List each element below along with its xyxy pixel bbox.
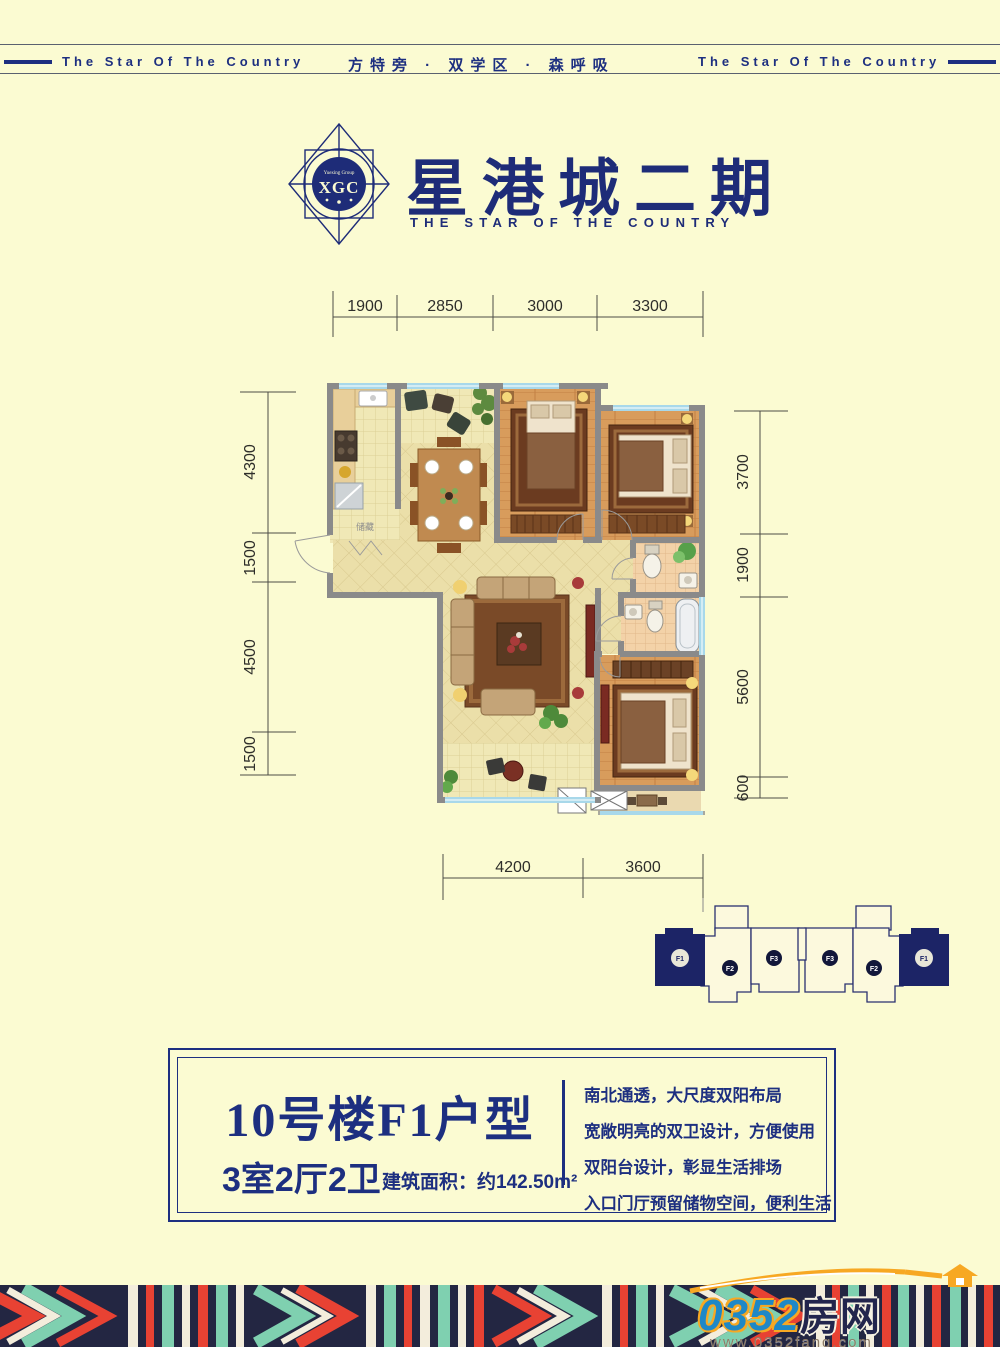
bedroom2-furniture: [609, 413, 693, 533]
site-url: www.0352fang.com: [710, 1334, 873, 1347]
feature-list: 南北通透，大尺度双阳布局 宽敞明亮的双卫设计，方便使用 双阳台设计，彰显生活排场…: [584, 1078, 832, 1222]
feature-item: 入口门厅预留储物空间，便利生活: [584, 1186, 832, 1222]
keyplan-outline-units: [701, 906, 903, 1002]
keyplan: F1 F2 F3 F3 F2 F1: [652, 898, 952, 1016]
brand-emblem: Yuexing Group XGC: [283, 118, 395, 250]
info-divider: [562, 1080, 565, 1185]
flyer-page: The Star Of The Country 方特旁 · 双学区 · 森呼吸 …: [0, 0, 1000, 1347]
unit-rooms: 3室2厅2卫: [222, 1152, 381, 1201]
svg-text:3300: 3300: [632, 298, 668, 315]
tagline-left: The Star Of The Country: [62, 54, 304, 69]
svg-text:1900: 1900: [735, 547, 752, 583]
svg-text:2850: 2850: [427, 298, 463, 315]
header-dash-left: [4, 60, 52, 64]
svg-text:3000: 3000: [527, 298, 563, 315]
unit-info-box: 10号楼F1户型 3室2厅2卫 建筑面积：约142.50m² 南北通透，大尺度双…: [168, 1048, 836, 1222]
header-rule-top: [0, 44, 1000, 45]
svg-text:1900: 1900: [347, 298, 383, 315]
floorplan-drawing: 储藏: [287, 383, 712, 818]
svg-text:F2: F2: [726, 966, 734, 973]
tagline-center: 方特旁 · 双学区 · 森呼吸: [348, 54, 615, 75]
feature-item: 双阳台设计，彰显生活排场: [584, 1150, 832, 1186]
project-subtitle: THE STAR OF THE COUNTRY: [410, 215, 735, 230]
unit-title: 10号楼F1户型: [210, 1080, 550, 1150]
svg-text:F2: F2: [870, 966, 878, 973]
svg-text:F1: F1: [920, 956, 928, 963]
svg-text:F1: F1: [676, 956, 684, 963]
svg-text:4300: 4300: [242, 444, 259, 480]
svg-text:4500: 4500: [242, 639, 259, 675]
site-name-number: 0352: [698, 1291, 800, 1340]
svg-text:600: 600: [735, 775, 752, 802]
svg-text:F3: F3: [826, 956, 834, 963]
svg-text:F3: F3: [770, 956, 778, 963]
svg-text:3600: 3600: [625, 859, 661, 876]
svg-text:1500: 1500: [242, 736, 259, 772]
site-name-suffix: 房网: [800, 1295, 880, 1339]
svg-text:5600: 5600: [735, 669, 752, 705]
header-dash-right: [948, 60, 996, 64]
svg-text:4200: 4200: [495, 859, 531, 876]
svg-text:1500: 1500: [242, 540, 259, 576]
unit-area: 建筑面积：约142.50m²: [382, 1167, 577, 1194]
feature-item: 宽敞明亮的双卫设计，方便使用: [584, 1114, 832, 1150]
storage-label: 储藏: [356, 521, 374, 532]
tagline-right: The Star Of The Country: [698, 54, 940, 69]
feature-item: 南北通透，大尺度双阳布局: [584, 1078, 832, 1114]
site-logo: 0352房网 www.0352fang.com: [680, 1262, 996, 1347]
emblem-initials: XGC: [319, 178, 360, 197]
emblem-group-text: Yuexing Group: [324, 171, 355, 176]
svg-text:3700: 3700: [735, 454, 752, 490]
